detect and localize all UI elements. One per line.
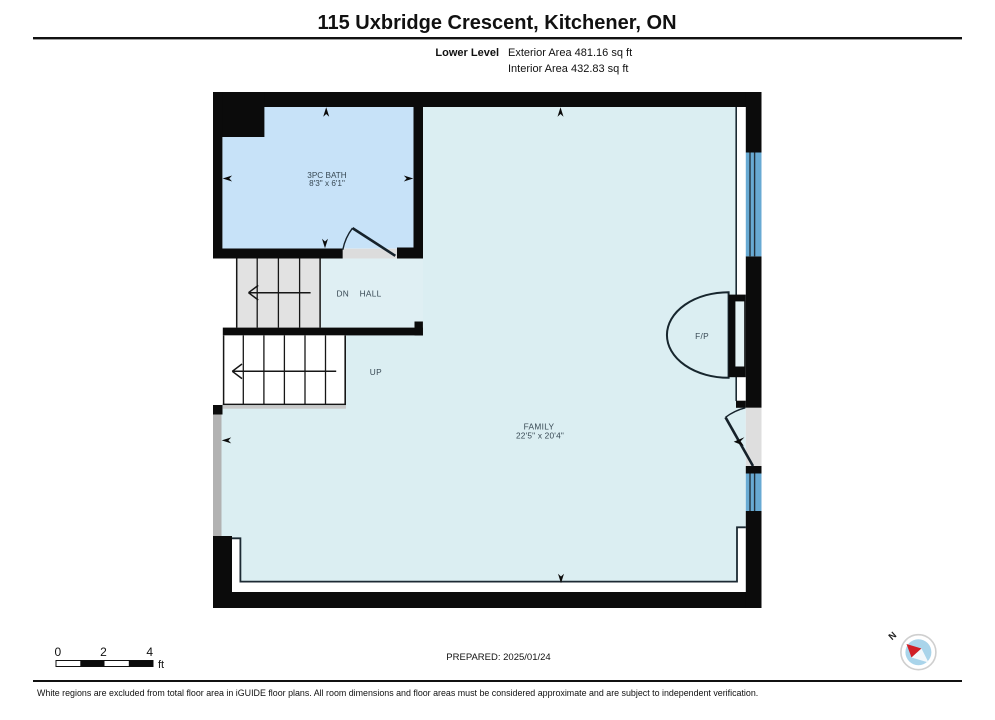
svg-text:115 Uxbridge Crescent, Kitchen: 115 Uxbridge Crescent, Kitchener, ON xyxy=(317,12,676,34)
svg-text:N: N xyxy=(887,630,900,643)
svg-text:PREPARED: 2025/01/24: PREPARED: 2025/01/24 xyxy=(446,652,550,663)
svg-text:UP: UP xyxy=(370,367,382,377)
svg-text:0: 0 xyxy=(54,645,61,659)
svg-text:4: 4 xyxy=(146,645,153,659)
svg-text:ft: ft xyxy=(158,659,164,671)
svg-text:F/P: F/P xyxy=(695,331,709,341)
svg-text:DN: DN xyxy=(337,289,350,299)
svg-text:Interior Area 432.83 sq ft: Interior Area 432.83 sq ft xyxy=(508,63,628,75)
svg-text:2: 2 xyxy=(100,645,107,659)
svg-text:22'5" x 20'4": 22'5" x 20'4" xyxy=(516,430,564,440)
svg-text:8'3" x 6'1": 8'3" x 6'1" xyxy=(309,179,345,188)
svg-text:Lower Level: Lower Level xyxy=(435,47,499,59)
svg-text:White regions are excluded fro: White regions are excluded from total fl… xyxy=(37,688,758,698)
svg-text:Exterior Area 481.16 sq ft: Exterior Area 481.16 sq ft xyxy=(508,47,632,59)
svg-text:HALL: HALL xyxy=(360,289,382,299)
